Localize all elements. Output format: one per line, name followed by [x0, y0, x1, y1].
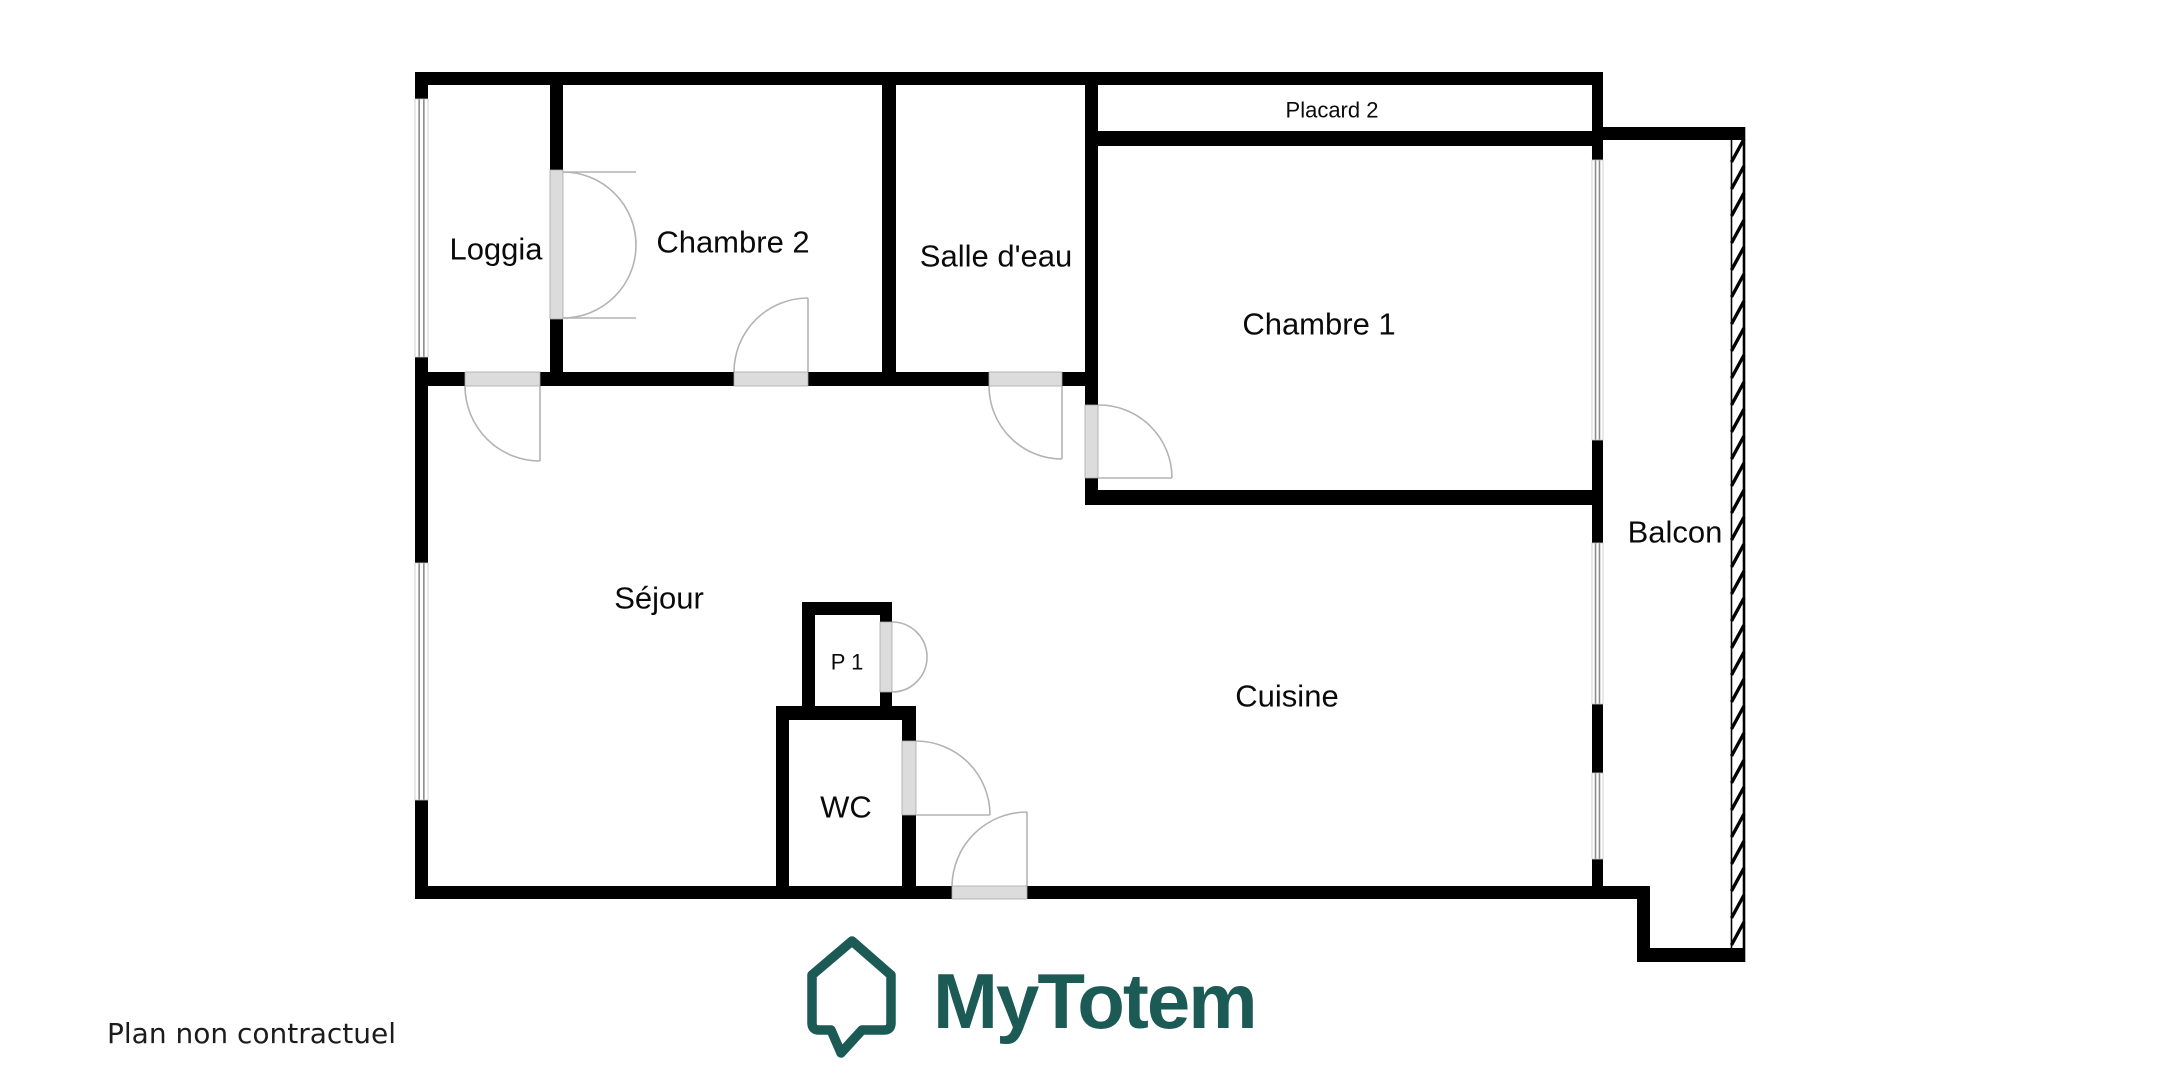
room-label-chambre-1: Chambre 1 [1242, 307, 1395, 342]
disclaimer-note: Plan non contractuel [107, 1017, 396, 1050]
walls-layer [415, 72, 1745, 962]
balcony-railing-hatch [1732, 127, 1745, 962]
room-label-p1: P 1 [831, 650, 864, 675]
room-label-placard-2: Placard 2 [1286, 98, 1379, 123]
floor-plan-canvas: Loggia Chambre 2 Salle d'eau Placard 2 C… [0, 0, 2160, 1080]
room-label-sejour: Séjour [614, 581, 704, 616]
mytotem-logo: MyTotem [812, 941, 1256, 1053]
house-speech-bubble-icon [812, 941, 891, 1053]
room-label-wc: WC [820, 790, 872, 825]
room-label-chambre-2: Chambre 2 [656, 225, 809, 260]
room-label-loggia: Loggia [449, 232, 543, 267]
windows-layer [415, 99, 1603, 859]
room-label-balcon: Balcon [1628, 515, 1723, 550]
room-label-cuisine: Cuisine [1235, 679, 1338, 714]
door-swings-layer [465, 172, 1172, 886]
room-label-salle-deau: Salle d'eau [920, 239, 1072, 274]
logo-wordmark: MyTotem [933, 957, 1256, 1045]
floor-plan-drawing: Loggia Chambre 2 Salle d'eau Placard 2 C… [0, 0, 2160, 1080]
